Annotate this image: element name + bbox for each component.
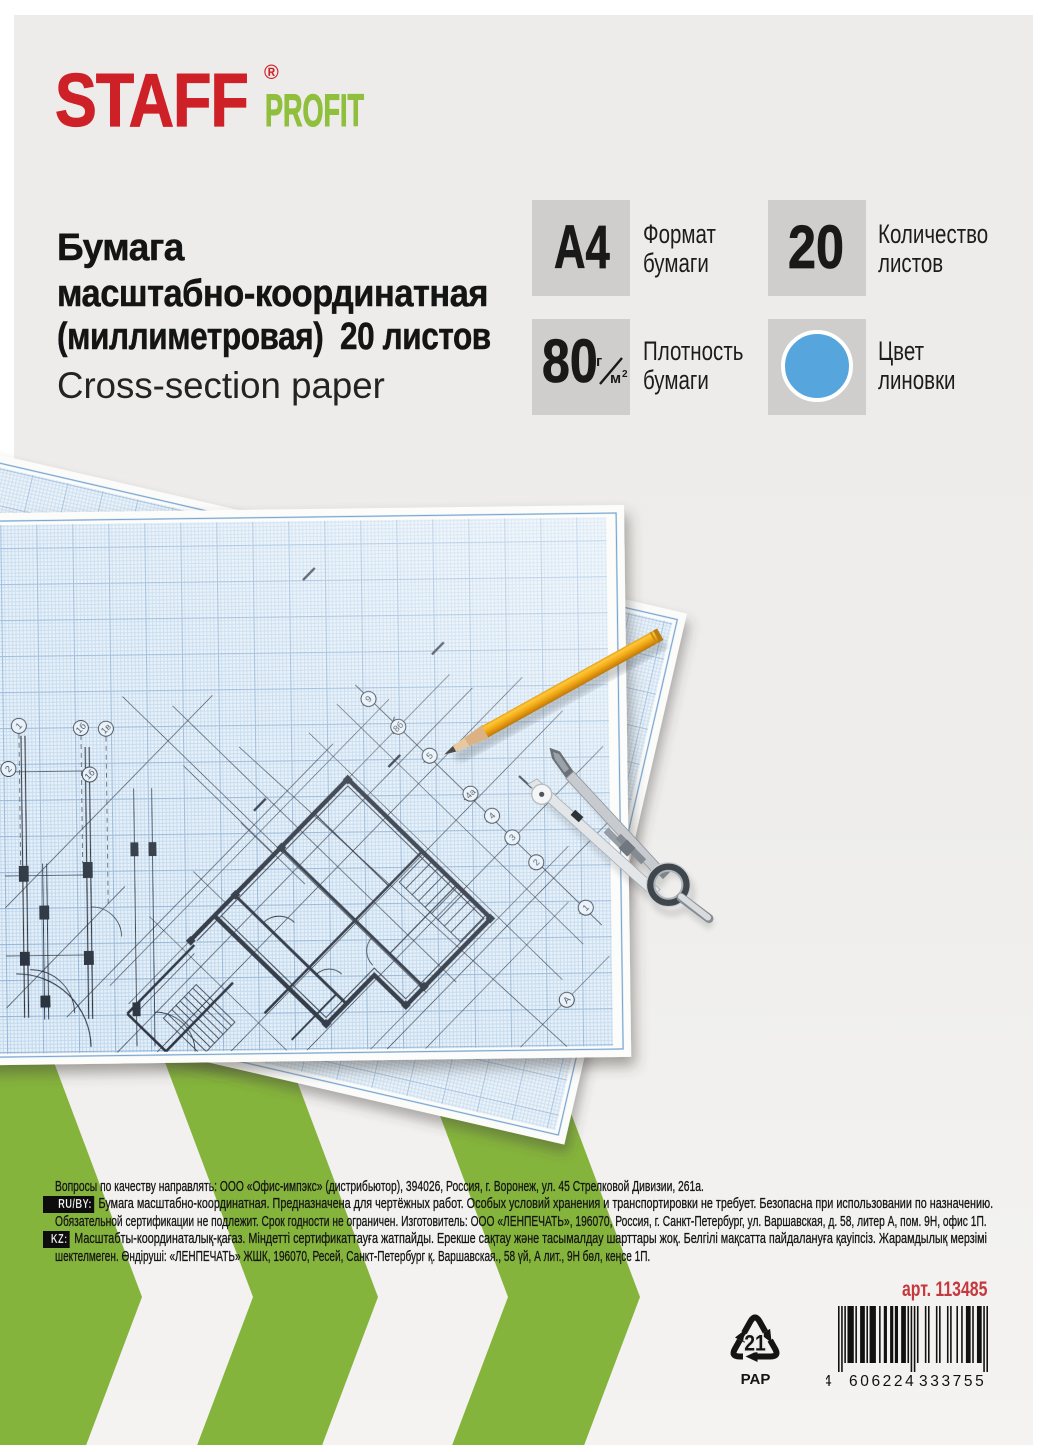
svg-text:606224: 606224 <box>849 1373 916 1390</box>
svg-text:PAP: PAP <box>741 1371 771 1388</box>
svg-text:21: 21 <box>744 1331 766 1355</box>
svg-text:4: 4 <box>826 1373 832 1390</box>
svg-text:333755: 333755 <box>919 1373 986 1390</box>
